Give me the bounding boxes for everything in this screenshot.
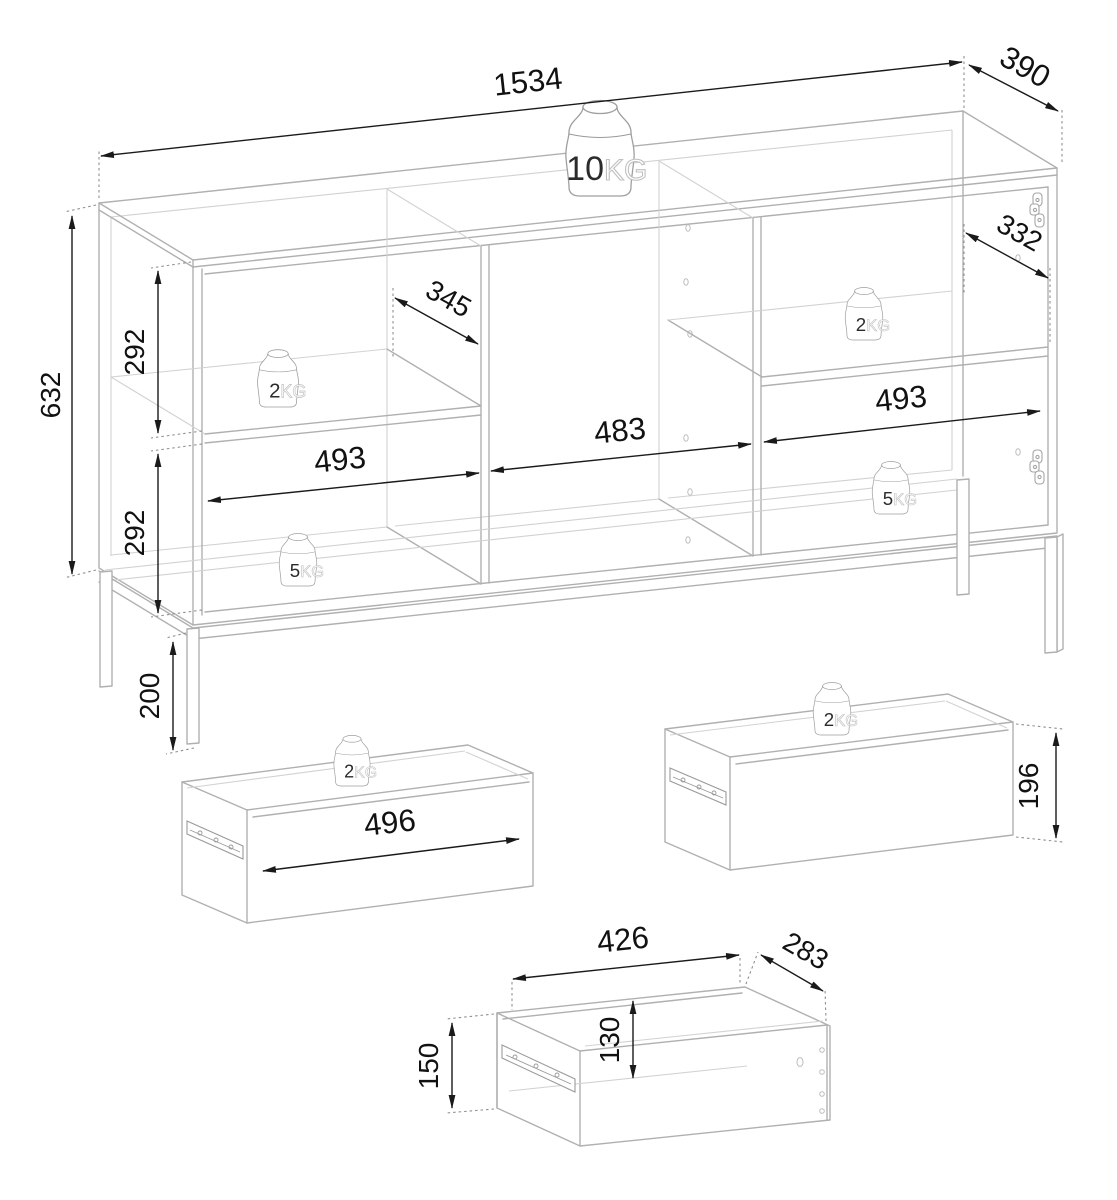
dim-drawer-small-depth: 283 (778, 926, 834, 976)
dim-drawer-small-width: 426 (595, 919, 650, 959)
dim-leg-height: 200 (134, 673, 165, 720)
dim-left-section-width: 493 (312, 439, 367, 479)
weight-right-bottom-value: 5 (883, 488, 893, 509)
dim-drawer-left-width: 496 (362, 802, 417, 843)
weight-drawer-right-unit: KG (834, 712, 858, 730)
weight-top-value: 10 (566, 150, 604, 188)
weight-drawer-left-unit: KG (354, 765, 377, 782)
drawer-left-drawing: 2 KG 496 (182, 735, 533, 923)
dim-drawer-small-inner-height: 130 (594, 1017, 625, 1064)
weight-drawer-right-value: 2 (824, 709, 834, 730)
weight-top-unit: KG (604, 154, 647, 187)
weight-left-shelf-value: 2 (269, 380, 280, 402)
technical-drawing-page: 10 KG 2 KG 5 KG 2 KG 5 KG 15 (0, 0, 1117, 1200)
drawer-right-drawing: 2 KG 196 (665, 682, 1063, 870)
dim-lower-compartment-height: 292 (119, 510, 150, 557)
drawer-small-drawing: 426 283 130 150 (413, 919, 834, 1146)
weight-left-shelf-unit: KG (280, 381, 306, 401)
dim-right-section-width: 493 (873, 378, 928, 418)
dim-cabinet-width: 1534 (492, 60, 564, 102)
weight-left-bottom-value: 5 (290, 560, 300, 581)
weight-right-bottom-unit: KG (893, 491, 917, 509)
weight-right-shelf-value: 2 (856, 314, 866, 335)
weight-left-bottom-unit: KG (300, 563, 324, 581)
weight-drawer-left-value: 2 (344, 762, 354, 782)
dim-center-section-width: 483 (592, 410, 647, 450)
cabinet-drawing: 10 KG 2 KG 5 KG 2 KG 5 KG 15 (35, 39, 1063, 754)
dim-drawer-right-height: 196 (1013, 763, 1044, 810)
dim-cabinet-height: 632 (35, 372, 66, 419)
dim-upper-compartment-height: 292 (119, 329, 150, 376)
dim-cabinet-depth: 390 (994, 39, 1056, 95)
furniture-dimension-diagram: 10 KG 2 KG 5 KG 2 KG 5 KG 15 (0, 0, 1117, 1200)
weight-right-shelf-unit: KG (866, 317, 890, 335)
dim-drawer-small-side-height: 150 (413, 1043, 444, 1090)
